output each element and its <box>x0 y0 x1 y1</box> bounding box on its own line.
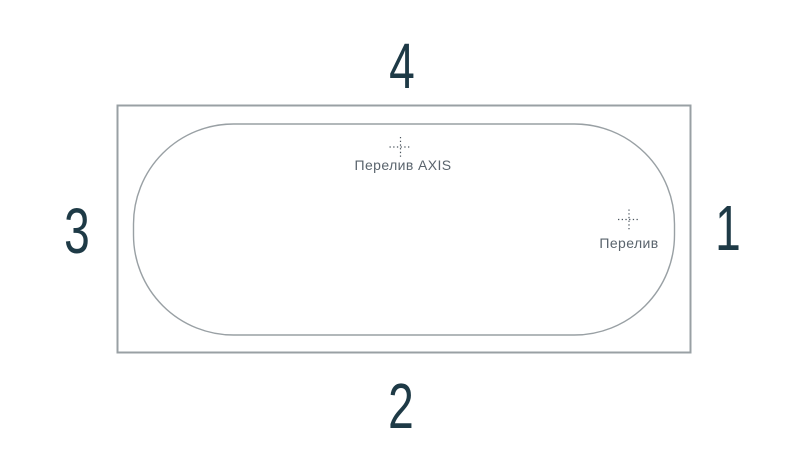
side-number-right: 1 <box>715 196 741 260</box>
side-number-bottom: 2 <box>388 374 414 438</box>
overflow-label: Перелив <box>599 236 658 250</box>
side-number-top: 4 <box>389 34 415 98</box>
overflow-axis-crosshair-icon <box>390 137 412 158</box>
tub-rim-outline <box>118 106 691 353</box>
tub-basin-outline <box>134 124 675 335</box>
overflow-crosshair-icon <box>618 210 640 231</box>
bathtub-top-view-diagram: 4 2 3 1 Перелив AXIS Перелив <box>0 0 800 464</box>
side-number-left: 3 <box>64 199 90 263</box>
overflow-axis-label: Перелив AXIS <box>355 158 452 172</box>
